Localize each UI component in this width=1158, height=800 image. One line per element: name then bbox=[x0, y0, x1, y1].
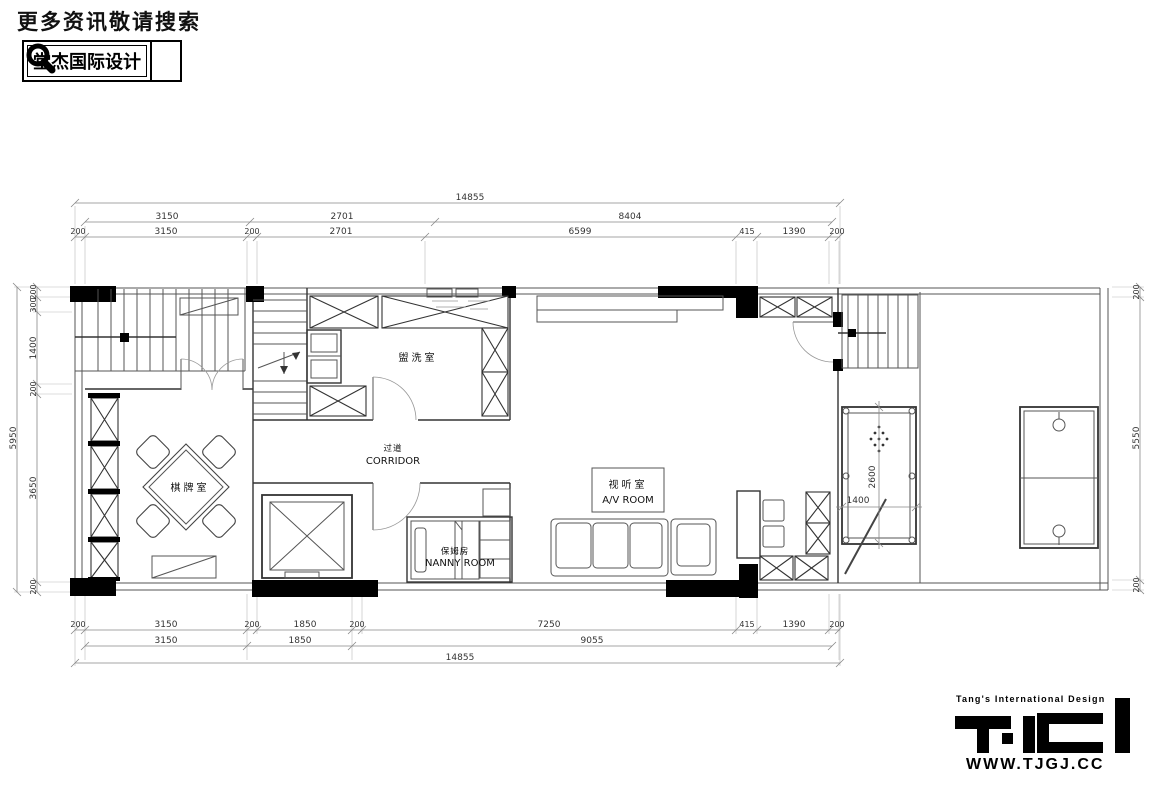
left-staircase bbox=[75, 289, 228, 371]
dimension-lines-bottom: 200 3150 200 1850 200 7250 415 1390 200 … bbox=[70, 620, 844, 667]
dim-label: 5550 bbox=[1132, 426, 1142, 449]
dim-label: 3150 bbox=[155, 636, 178, 646]
billiards-area: 2600 1400 bbox=[836, 401, 922, 574]
dim-label: 300 bbox=[29, 297, 38, 312]
stair-rail-marker bbox=[120, 333, 129, 342]
dim-label: 1850 bbox=[294, 620, 317, 630]
dim-label: 1390 bbox=[783, 620, 806, 630]
dim-label: 2701 bbox=[331, 212, 354, 222]
dim-label: 3650 bbox=[29, 476, 39, 499]
terrace bbox=[1020, 407, 1098, 548]
floor-plan-poster: 更多资讯敬请搜索 堂杰国际设计 14855 3150 2701 bbox=[0, 0, 1158, 800]
dim-label: 415 bbox=[739, 620, 754, 629]
room-label-av-cn: 视听室 bbox=[609, 478, 648, 491]
brand-website: WWW.TJGJ.CC bbox=[966, 756, 1104, 774]
elevator-door bbox=[285, 572, 319, 578]
dim-label: 1400 bbox=[847, 496, 870, 506]
dim-label: 200 bbox=[70, 620, 85, 629]
closet-fixture bbox=[1020, 407, 1098, 548]
room-label-corridor-cn: 过道 bbox=[383, 443, 402, 454]
armchair bbox=[671, 519, 716, 575]
room-label-mahjong: 棋牌室 bbox=[171, 481, 210, 494]
dim-label: 14855 bbox=[446, 653, 475, 663]
dim-label: 415 bbox=[739, 227, 754, 236]
dimension-extension-lines bbox=[14, 206, 1144, 666]
dim-label: 200 bbox=[29, 579, 38, 594]
stool bbox=[763, 526, 784, 547]
nightstand bbox=[480, 521, 510, 578]
laundry-room: 盥洗室 bbox=[307, 289, 508, 420]
dim-label: 200 bbox=[244, 227, 259, 236]
dimension-lines-left: 200 300 1400 200 3650 200 5950 bbox=[9, 283, 41, 596]
stair-direction-arrow bbox=[280, 366, 288, 374]
dim-label: 6599 bbox=[569, 227, 592, 237]
dim-label: 2701 bbox=[330, 227, 353, 237]
brand-tagline: Tang's International Design bbox=[956, 694, 1105, 704]
nanny-door bbox=[373, 483, 420, 530]
middle-staircase bbox=[253, 300, 307, 414]
dim-label: 1850 bbox=[289, 636, 312, 646]
dim-label: 8404 bbox=[619, 212, 642, 222]
dimension-lines-top: 14855 3150 2701 8404 200 3150 200 2701 6… bbox=[70, 193, 844, 241]
sofa bbox=[551, 519, 668, 576]
stair-direction-arrow bbox=[292, 352, 300, 360]
dim-label: 14855 bbox=[456, 193, 485, 203]
dim-label: 3150 bbox=[155, 620, 178, 630]
washer-dryer-stack bbox=[307, 330, 341, 383]
elevator-shaft bbox=[262, 495, 352, 578]
av-cabinets bbox=[760, 297, 832, 580]
bar-counter bbox=[737, 491, 784, 558]
right-staircase bbox=[838, 295, 918, 368]
dim-label: 200 bbox=[29, 381, 38, 396]
corridor: 过道 CORRIDOR bbox=[366, 443, 420, 467]
dim-label: 200 bbox=[244, 620, 259, 629]
room-label-av-en: A/V ROOM bbox=[602, 495, 654, 506]
room-label-nanny-en: NANNY ROOM bbox=[425, 558, 495, 569]
dim-label: 1390 bbox=[783, 227, 806, 237]
dim-label: 200 bbox=[1132, 577, 1141, 592]
av-door bbox=[793, 322, 833, 362]
laundry-door bbox=[373, 377, 416, 420]
dim-label: 5950 bbox=[9, 426, 19, 449]
bench-cabinet bbox=[152, 556, 216, 578]
wardrobe-cabinets bbox=[91, 398, 118, 578]
dim-label: 200 bbox=[70, 227, 85, 236]
av-room: 视听室 A/V ROOM bbox=[537, 296, 833, 580]
handle-knob bbox=[1053, 525, 1065, 537]
room-label-laundry: 盥洗室 bbox=[399, 351, 438, 364]
handle-knob bbox=[1053, 419, 1065, 431]
floor-plan-drawing: 14855 3150 2701 8404 200 3150 200 2701 6… bbox=[0, 0, 1158, 800]
double-door bbox=[181, 359, 243, 390]
dimension-lines-right: 200 5550 200 bbox=[1132, 283, 1144, 594]
room-label-corridor-en: CORRIDOR bbox=[366, 456, 420, 467]
stool bbox=[763, 500, 784, 521]
dim-label: 200 bbox=[829, 620, 844, 629]
dim-label: 200 bbox=[829, 227, 844, 236]
stair-rail-marker bbox=[848, 329, 856, 337]
dim-label: 3150 bbox=[156, 212, 179, 222]
tv-cabinet bbox=[537, 296, 723, 322]
nanny-room: 保姆房 NANNY ROOM bbox=[373, 483, 512, 582]
billiard-cue bbox=[845, 499, 886, 574]
dim-label: 7250 bbox=[538, 620, 561, 630]
side-table bbox=[483, 489, 510, 516]
dim-label: 3150 bbox=[155, 227, 178, 237]
dim-label: 9055 bbox=[581, 636, 604, 646]
dim-label: 200 bbox=[29, 284, 38, 299]
dim-label: 200 bbox=[1132, 284, 1141, 299]
room-label-nanny-cn: 保姆房 bbox=[441, 546, 470, 557]
footer-branding: Tang's International Design WWW.TJGJ.CC bbox=[950, 692, 1145, 787]
dim-label: 2600 bbox=[868, 465, 878, 488]
dim-label: 200 bbox=[349, 620, 364, 629]
dim-label: 1400 bbox=[29, 336, 39, 359]
